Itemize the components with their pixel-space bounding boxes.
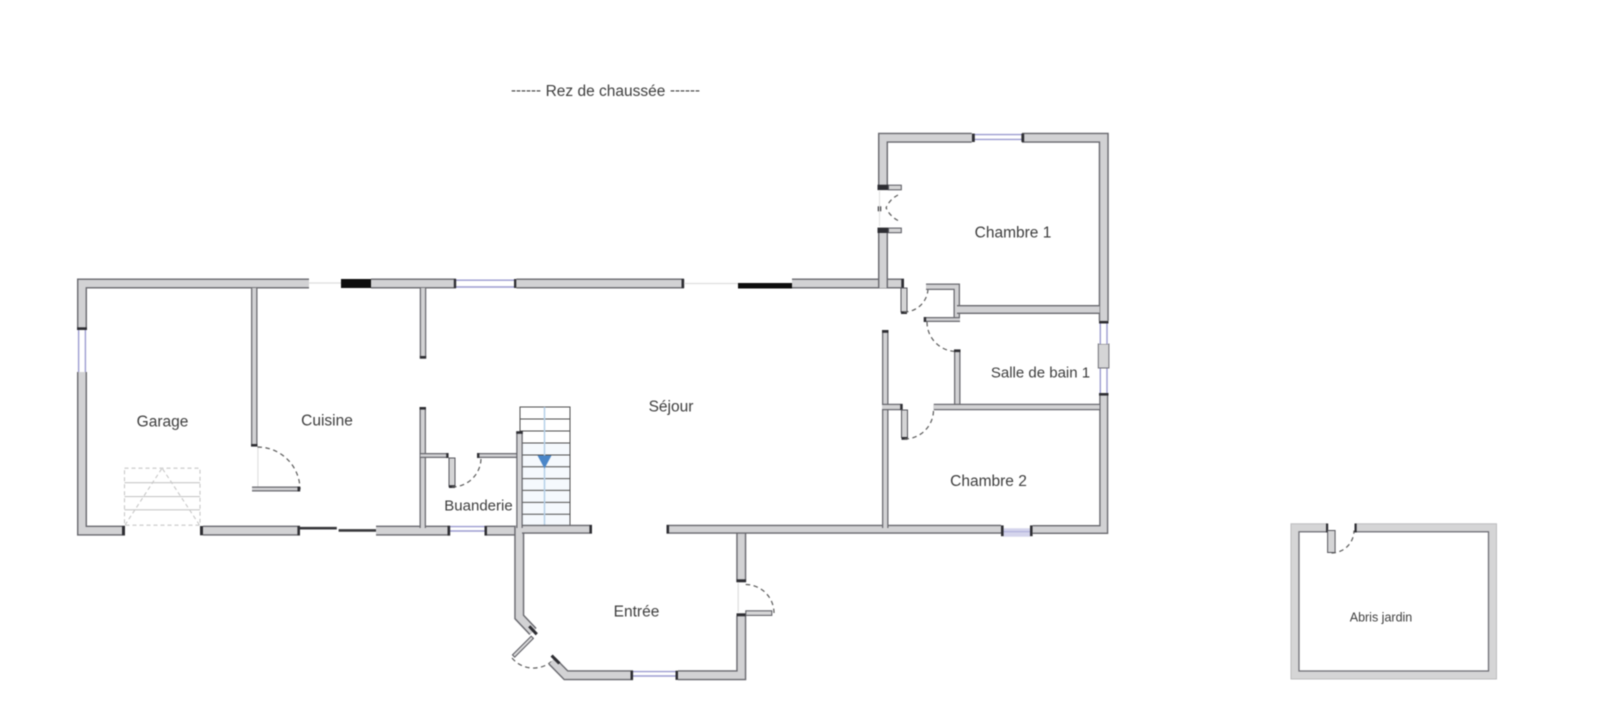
svg-text:Entrée: Entrée [614, 604, 660, 621]
svg-text:Séjour: Séjour [649, 399, 694, 416]
svg-text:Rez de chaussée: Rez de chaussée [546, 83, 666, 100]
svg-text:------: ------ [511, 82, 541, 99]
svg-text:Chambre 2: Chambre 2 [950, 473, 1027, 490]
svg-text:Cuisine: Cuisine [301, 413, 353, 430]
svg-text:Buanderie: Buanderie [444, 498, 512, 515]
svg-text:------: ------ [670, 82, 700, 99]
svg-text:Chambre 1: Chambre 1 [975, 225, 1052, 242]
svg-text:Salle de bain 1: Salle de bain 1 [991, 365, 1090, 382]
svg-text:Garage: Garage [137, 414, 189, 431]
svg-text:Abris jardin: Abris jardin [1350, 611, 1413, 625]
